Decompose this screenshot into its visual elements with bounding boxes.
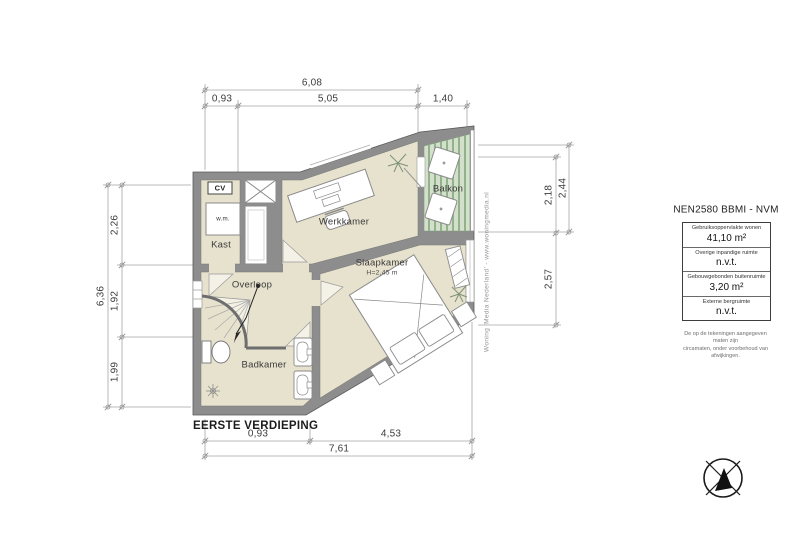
shower-drain-icon [206, 384, 220, 398]
room-label-slaapkamer-height: H=2,45 m [366, 270, 397, 277]
table-row: Gebruiksoppervlakte wonen 41,10 m² [683, 223, 770, 248]
room-label-balkon: Balkon [433, 184, 463, 195]
dim-top-seg3: 1,40 [433, 94, 453, 105]
watermark-text: Woning 'Media Nederland' - www.woningmed… [484, 192, 491, 352]
dim-bottom-seg2: 4,53 [381, 429, 401, 440]
dim-top-total: 6,08 [302, 78, 322, 89]
disclaimer-line: circamaten, onder voorbehoud van afwijki… [682, 346, 769, 361]
north-arrow-icon [704, 459, 742, 497]
dim-left-seg2: 1,92 [110, 291, 121, 311]
table-row-label: Overige inpandige ruimte [684, 250, 769, 256]
table-row: Externe bergruimte n.v.t. [683, 297, 770, 321]
table-row-value: n.v.t. [684, 257, 769, 268]
sink-icon [294, 371, 312, 399]
dim-left-total: 6,36 [96, 286, 107, 306]
floor-title: EERSTE VERDIEPING [193, 420, 318, 432]
table-row-value: 41,10 m² [684, 233, 769, 244]
sink-icon [294, 338, 312, 366]
disclaimer-line: De op de tekeningen aangegeven maten zij… [682, 331, 769, 346]
balcony-railing [471, 130, 475, 231]
table-row-label: Gebruiksoppervlakte wonen [684, 225, 769, 231]
table-row: Gebouwgebonden buitenruimte 3,20 m² [683, 272, 770, 297]
room-label-kast: Kast [211, 240, 231, 251]
room-label-overloop: Overloop [232, 280, 272, 291]
table-row-value: 3,20 m² [684, 282, 769, 293]
room-label-slaapkamer: Slaapkamer [356, 258, 409, 269]
table-row-value: n.v.t. [684, 306, 769, 317]
table-row-label: Gebouwgebonden buitenruimte [684, 274, 769, 280]
legend-title: NEN2580 BBMI - NVM [673, 205, 778, 216]
table-row: Overige inpandige ruimte n.v.t. [683, 248, 770, 273]
room-label-werkkamer: Werkkamer [319, 217, 369, 228]
dim-top-seg2: 5,05 [318, 94, 338, 105]
floorplan-canvas: 6,08 0,93 5,05 1,40 6,36 2,26 1,92 1,99 … [0, 0, 785, 550]
dim-right-seg1: 2,18 [544, 185, 555, 205]
dim-top-seg1: 0,93 [212, 94, 232, 105]
balcony-door [417, 157, 425, 187]
room-label-cv: CV [215, 184, 226, 193]
entry-door [193, 281, 202, 308]
dim-left-seg1: 2,26 [110, 215, 121, 235]
dim-left-seg3: 1,99 [110, 362, 121, 382]
measurement-table: Gebruiksoppervlakte wonen 41,10 m² Overi… [682, 222, 771, 321]
dim-bottom-total: 7,61 [329, 444, 349, 455]
disclaimer-text: De op de tekeningen aangegeven maten zij… [682, 331, 769, 361]
shaft-icon [245, 180, 276, 203]
table-row-label: Externe bergruimte [684, 299, 769, 305]
dim-right-seg2: 2,57 [544, 269, 555, 289]
dim-right-outer: 2,44 [558, 178, 569, 198]
toilet-icon [202, 341, 230, 363]
washing-machine-label: w.m. [216, 216, 230, 223]
room-label-badkamer: Badkamer [242, 360, 287, 371]
